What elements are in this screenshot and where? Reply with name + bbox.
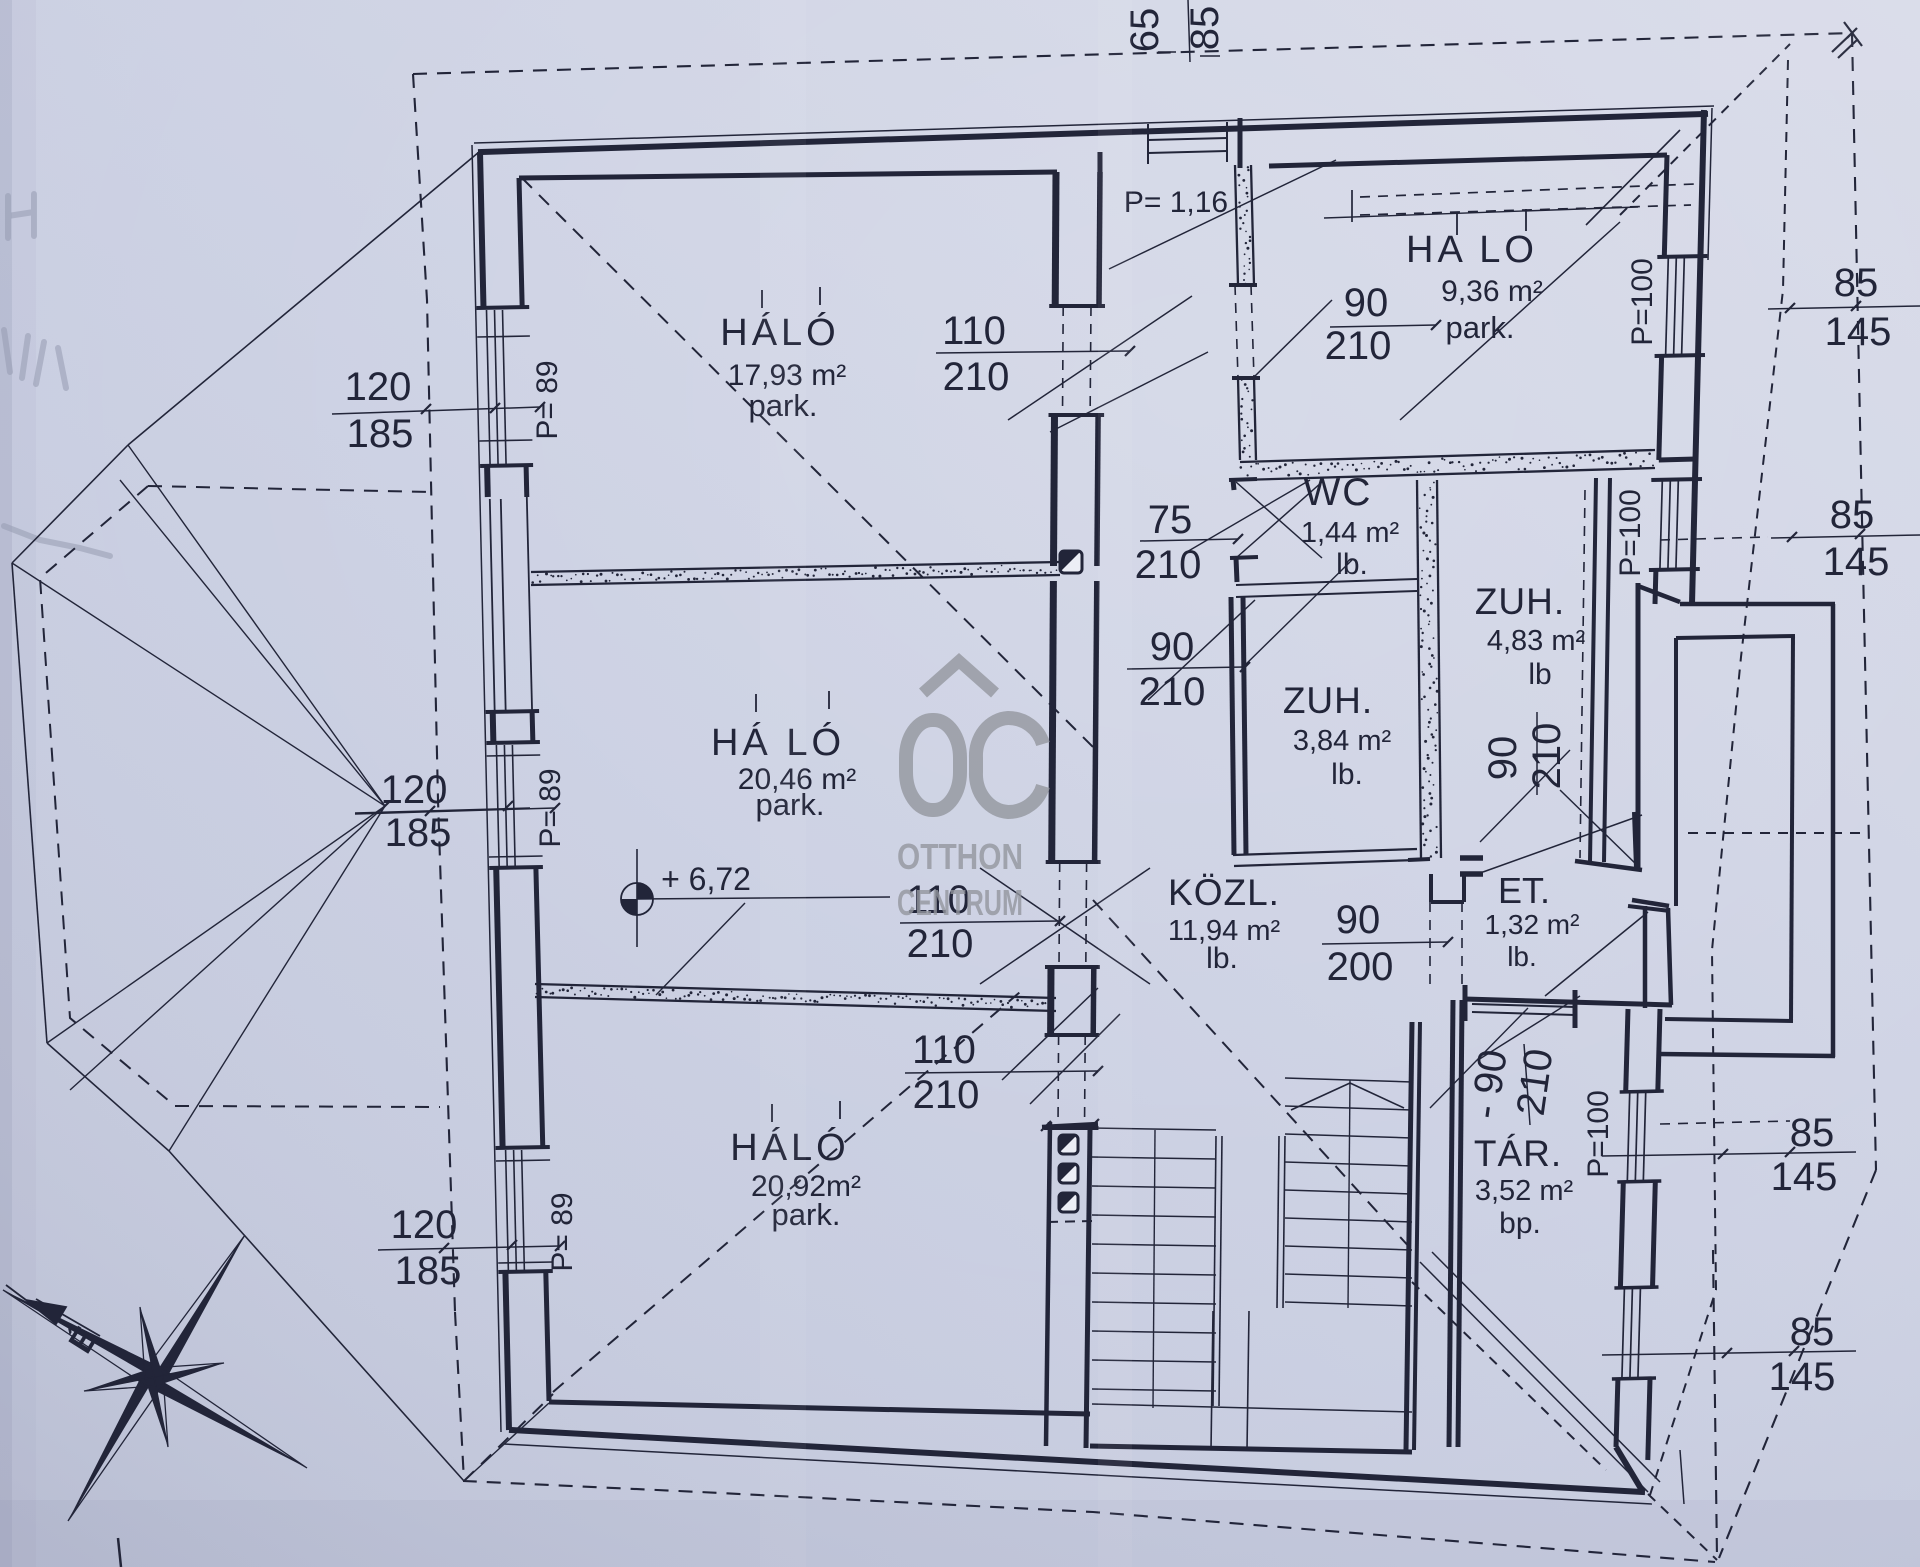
svg-text:90: 90 — [1150, 625, 1195, 669]
svg-text:210: 210 — [1525, 723, 1569, 790]
svg-text:1,32 m²: 1,32 m² — [1485, 909, 1580, 940]
svg-text:120: 120 — [381, 768, 448, 812]
svg-text:P= 89: P= 89 — [546, 1192, 579, 1271]
svg-text:210: 210 — [913, 1073, 980, 1117]
svg-text:145: 145 — [1823, 540, 1890, 584]
svg-text:3,52 m²: 3,52 m² — [1475, 1175, 1574, 1207]
svg-text:lb.: lb. — [1331, 758, 1363, 791]
svg-text:P=100: P=100 — [1614, 489, 1647, 577]
svg-text:4,83 m²: 4,83 m² — [1487, 625, 1586, 657]
svg-text:ET.: ET. — [1498, 870, 1550, 911]
svg-text:85: 85 — [1834, 261, 1879, 305]
svg-text:85: 85 — [1183, 6, 1227, 51]
svg-text:P=100: P=100 — [1626, 258, 1659, 346]
svg-text:75: 75 — [1148, 498, 1193, 542]
svg-text:WC: WC — [1304, 471, 1373, 514]
svg-text:P= 1,16: P= 1,16 — [1124, 186, 1228, 219]
svg-text:145: 145 — [1825, 310, 1892, 354]
svg-text:90: 90 — [1336, 898, 1381, 942]
svg-text:P= 89: P= 89 — [534, 768, 567, 847]
svg-text:9,36 m²: 9,36 m² — [1441, 275, 1543, 308]
svg-text:120: 120 — [391, 1203, 458, 1247]
svg-text:TÁR.: TÁR. — [1474, 1133, 1562, 1174]
svg-text:185: 185 — [347, 412, 414, 456]
svg-text:145: 145 — [1771, 1155, 1838, 1199]
svg-text:P= 89: P= 89 — [531, 360, 564, 439]
svg-text:90: 90 — [1481, 736, 1525, 781]
svg-text:200: 200 — [1327, 945, 1394, 989]
svg-text:CENTRUM: CENTRUM — [897, 882, 1023, 923]
svg-text:lb.: lb. — [1336, 548, 1368, 581]
svg-text:210: 210 — [1135, 543, 1202, 587]
svg-text:lb.: lb. — [1507, 941, 1537, 972]
svg-text:185: 185 — [395, 1249, 462, 1293]
svg-text:ZUH.: ZUH. — [1475, 581, 1565, 622]
svg-text:HA LO: HA LO — [1406, 229, 1538, 271]
svg-text:+ 6,72: + 6,72 — [661, 861, 751, 897]
svg-text:ZUH.: ZUH. — [1283, 680, 1373, 721]
svg-text:210: 210 — [1509, 1046, 1562, 1118]
svg-text:85: 85 — [1790, 1111, 1835, 1155]
svg-text:1,44 m²: 1,44 m² — [1301, 517, 1400, 549]
svg-text:110: 110 — [942, 309, 1006, 353]
svg-text:park.: park. — [1446, 310, 1515, 345]
svg-text:145: 145 — [1769, 1355, 1836, 1399]
svg-text:lb.: lb. — [1206, 942, 1238, 975]
svg-text:210: 210 — [907, 922, 974, 966]
svg-text:bp.: bp. — [1499, 1207, 1541, 1240]
svg-text:210: 210 — [1325, 324, 1392, 368]
svg-text:KÖZL.: KÖZL. — [1168, 872, 1280, 913]
svg-text:210: 210 — [943, 355, 1010, 399]
svg-text:120: 120 — [345, 365, 412, 409]
svg-text:lb: lb — [1528, 658, 1551, 691]
svg-text:110: 110 — [912, 1028, 976, 1072]
svg-text:OTTHON: OTTHON — [897, 836, 1023, 877]
svg-text:90: 90 — [1344, 281, 1389, 325]
svg-text:P=100: P=100 — [1582, 1090, 1615, 1178]
svg-text:85: 85 — [1830, 493, 1875, 537]
svg-text:185: 185 — [385, 811, 452, 855]
svg-text:3,84 m²: 3,84 m² — [1293, 725, 1392, 757]
svg-text:210: 210 — [1139, 670, 1206, 714]
